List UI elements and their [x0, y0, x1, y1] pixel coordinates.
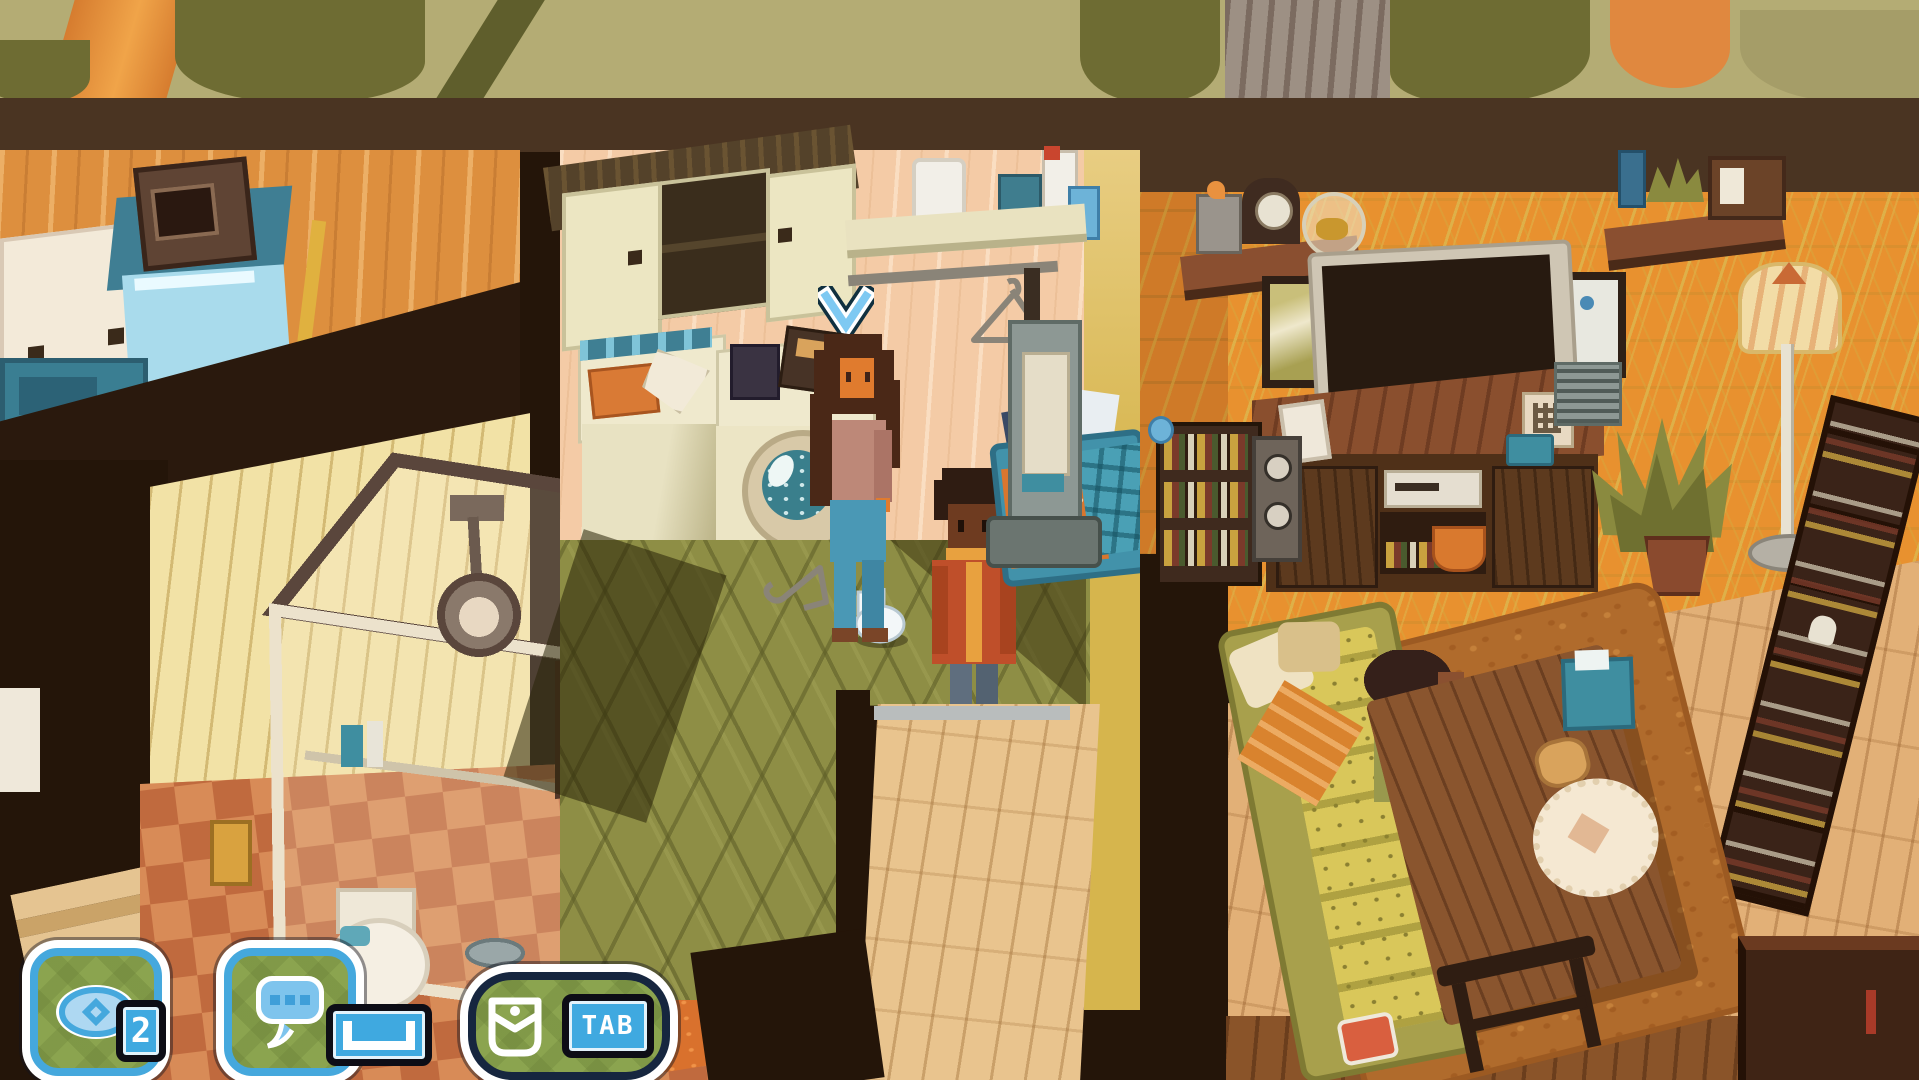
- vcr-slot: [1395, 483, 1439, 491]
- answering-machine: [1554, 362, 1622, 426]
- toilet-seat-accent: [340, 926, 370, 946]
- vacuum-cleaner: [980, 268, 1100, 588]
- vcr: [1384, 470, 1482, 508]
- chair-rail: [1467, 996, 1587, 1033]
- tissue-box: [1561, 657, 1635, 731]
- spacebar-key-icon: [343, 1021, 414, 1050]
- tree-foliage: [175, 0, 425, 102]
- hallway-floor: [858, 704, 1100, 1080]
- shelf-frames: [1708, 156, 1786, 220]
- ornament-blue: [1148, 416, 1174, 444]
- fishbowl: [1302, 192, 1366, 258]
- vacuum-handle: [1024, 268, 1040, 326]
- speaker-cone: [1264, 454, 1292, 482]
- inventory-key-tab[interactable]: TAB: [562, 994, 654, 1058]
- tree-foliage: [1080, 0, 1220, 102]
- detergent-box: [730, 344, 780, 400]
- roof-cross-section: [0, 98, 1919, 152]
- pocket-icon: [484, 993, 546, 1059]
- book-row: [1164, 482, 1248, 518]
- skull-decal: [1807, 613, 1839, 646]
- lamp-shade: [1738, 262, 1842, 354]
- console-lower-shelf: [1380, 512, 1486, 574]
- window-glare: [763, 451, 799, 491]
- washer-front: [582, 424, 724, 550]
- cabinet-handle: [628, 250, 642, 266]
- vacuum-body: [1008, 320, 1082, 528]
- lamp-finial: [1772, 262, 1806, 284]
- potted-plant: [1592, 418, 1732, 594]
- inventory-button[interactable]: TAB: [468, 972, 670, 1080]
- shower-drain: [467, 940, 523, 966]
- character-mom[interactable]: [810, 332, 905, 652]
- bookshelf: [1156, 422, 1262, 586]
- shower-head-face: [459, 597, 499, 637]
- frame-card: [1720, 168, 1744, 204]
- mantel-clock: [1242, 178, 1300, 244]
- clock-face: [1255, 192, 1293, 230]
- throw-pillow: [1278, 621, 1341, 672]
- vacuum-accent: [1022, 474, 1064, 492]
- observe-key-badge[interactable]: 2: [116, 1000, 166, 1062]
- toilet-tank-glimpse: [0, 688, 40, 792]
- spray-bottle-cap: [1044, 146, 1060, 160]
- microwave: [133, 156, 257, 271]
- game-screen: 2 TAB: [0, 0, 1919, 1080]
- cabinet-door: [562, 181, 662, 351]
- speech-bubble-icon: [248, 970, 332, 1054]
- shampoo-bottle: [367, 721, 383, 767]
- couch-toy: [1336, 1011, 1400, 1067]
- book-row: [1164, 530, 1248, 566]
- cabinet-accent: [1866, 990, 1876, 1034]
- vacuum-canister: [1022, 352, 1070, 476]
- tree-trunk-gray: [1225, 0, 1390, 102]
- fishbowl-gold: [1316, 218, 1348, 240]
- corner-cabinet: [1738, 936, 1919, 1080]
- figurine: [1196, 194, 1242, 254]
- figurine-flame: [1207, 181, 1225, 199]
- shampoo-bottle: [341, 725, 363, 767]
- towel-hook: [210, 820, 252, 886]
- plant-pot: [1644, 536, 1710, 596]
- tissue: [1575, 649, 1610, 670]
- orange-bowl: [1432, 526, 1486, 572]
- tree-foliage: [1390, 0, 1590, 102]
- cabinet-shelf-line: [662, 233, 766, 254]
- tree-foliage: [0, 40, 90, 102]
- living-room: [1140, 150, 1919, 1080]
- lamp-pole: [1781, 344, 1794, 542]
- speaker: [1252, 436, 1302, 562]
- shelf-blue-bottle: [1618, 150, 1646, 208]
- book-row: [1164, 434, 1248, 470]
- washing-machine: [578, 342, 724, 552]
- hallway-under-shadow: [690, 929, 884, 1080]
- toy-truck: [1506, 434, 1554, 466]
- hallway-threshold: [874, 706, 1070, 720]
- cabinet-handle: [778, 227, 792, 243]
- microwave-window: [150, 183, 219, 241]
- picture-motif: [1580, 296, 1594, 310]
- vacuum-base: [986, 516, 1102, 568]
- cabinet-open-interior: [658, 168, 770, 320]
- console-door: [1492, 466, 1594, 588]
- doily-center: [1568, 813, 1610, 853]
- speaker-cone: [1264, 502, 1292, 530]
- talk-key-badge-spacebar[interactable]: [326, 1004, 432, 1066]
- console-body: [1266, 454, 1598, 592]
- living-left-wall-cut: [1140, 554, 1228, 1080]
